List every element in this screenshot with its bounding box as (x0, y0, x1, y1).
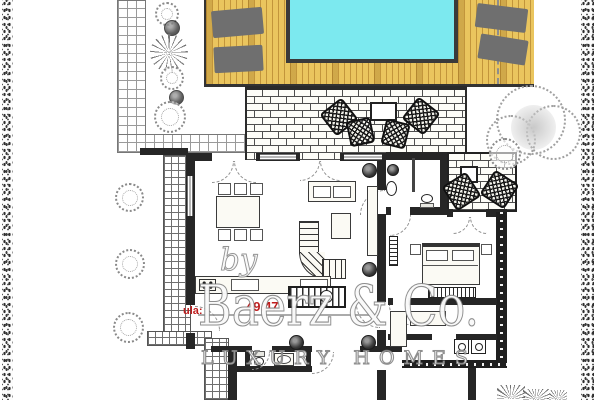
door-swing (234, 161, 256, 183)
wicker-chair (346, 117, 376, 148)
potted-plant (362, 163, 377, 178)
grass-tuft (549, 390, 567, 400)
walkway-jog (147, 331, 212, 346)
window (187, 176, 193, 216)
washer-drum (458, 343, 466, 351)
pillow (426, 250, 448, 261)
door-swing (390, 215, 411, 236)
window (260, 154, 296, 160)
dining-table (216, 196, 260, 228)
blanket-line (423, 265, 478, 266)
wall-segment (447, 209, 453, 217)
grass-tuft (497, 385, 525, 399)
swimming-pool (286, 0, 458, 63)
entrance-area-value: 49.47 (246, 299, 279, 314)
potted-plant (289, 335, 304, 350)
dining-chair (218, 183, 231, 195)
bathroom-sink (386, 181, 397, 196)
wall-segment (386, 207, 391, 215)
bush (113, 312, 144, 343)
door-swing (470, 217, 487, 234)
dining-chair (234, 229, 247, 241)
wall-segment (377, 214, 386, 302)
grass-tuft (523, 389, 549, 400)
kitchen-sink (231, 279, 259, 291)
door-swing (453, 217, 470, 234)
entrance-label: ula: (183, 305, 203, 317)
staircase-landing-circle (320, 290, 333, 303)
bush-inner (122, 190, 138, 206)
toilet-tank (420, 203, 434, 208)
door-swing (312, 352, 334, 374)
bush-inner (161, 108, 179, 126)
shrub (489, 138, 521, 170)
wall-segment (388, 298, 393, 305)
wall-segment (410, 207, 447, 215)
bush (154, 101, 186, 133)
insulated-wall-bottom (402, 360, 507, 368)
sideboard (367, 186, 378, 256)
site-floor-plan: ula: 49.47 by Baerz & Co. LUXURY HOMES (0, 0, 600, 400)
pillow (452, 250, 474, 261)
bathroom-divider (412, 158, 415, 192)
dryer (471, 339, 486, 354)
nightstand (481, 244, 492, 255)
toilet-bowl (421, 194, 433, 203)
wall-segment (408, 298, 497, 305)
boundary-hedge-left (2, 0, 13, 400)
boundary-hedge-right (581, 0, 594, 400)
dining-chair (250, 229, 263, 241)
watermark-by: by (220, 242, 257, 278)
wall-segment (140, 148, 188, 155)
toilet-bowl (254, 357, 264, 366)
wall-segment (377, 370, 386, 400)
wall-segment (468, 368, 476, 400)
coffee-table (331, 213, 351, 239)
bush (115, 183, 144, 212)
wall-segment (186, 333, 195, 349)
wardrobe (410, 311, 446, 326)
bush (160, 66, 184, 90)
dining-chair (250, 183, 263, 195)
stove-cooktop (199, 279, 216, 291)
sofa (308, 181, 356, 202)
wc-sink-basin (277, 355, 291, 364)
sun-lounger (211, 7, 264, 38)
sofa-cushion (333, 186, 351, 198)
staircase (288, 286, 346, 308)
potted-plant (362, 262, 377, 277)
sofa-cushion (313, 186, 331, 198)
bed (422, 243, 480, 285)
bush (115, 249, 145, 279)
bush-inner (120, 319, 137, 336)
door-swing (212, 161, 234, 183)
insulated-wall-right (496, 212, 507, 368)
bush-inner (122, 256, 139, 273)
window (344, 154, 382, 160)
nightstand (410, 244, 421, 255)
bush-inner (161, 8, 174, 21)
radiator (389, 236, 398, 266)
wall-segment (228, 352, 237, 400)
dining-chair (234, 183, 247, 195)
sun-lounger (213, 45, 263, 74)
door-swing (320, 161, 340, 181)
bathroom-fixture-dark (387, 164, 399, 176)
washing-machine (454, 339, 469, 354)
wall-segment (386, 152, 447, 160)
wardrobe (390, 311, 407, 347)
wall-segment (211, 346, 230, 352)
dryer-drum (475, 343, 483, 351)
dining-chair (218, 229, 231, 241)
patio-table (370, 102, 397, 121)
curved-sectional-sofa (299, 221, 319, 254)
tree-core-shade (511, 105, 556, 150)
shrub-inner (496, 145, 514, 163)
door-swing (300, 161, 320, 181)
bush-inner (166, 72, 179, 85)
bed-bench (428, 287, 476, 298)
potted-plant (361, 335, 376, 350)
door-swing (356, 304, 380, 328)
tile-path-vertical (117, 0, 146, 136)
hall-floor-line (198, 314, 378, 316)
wall-segment (230, 366, 312, 372)
